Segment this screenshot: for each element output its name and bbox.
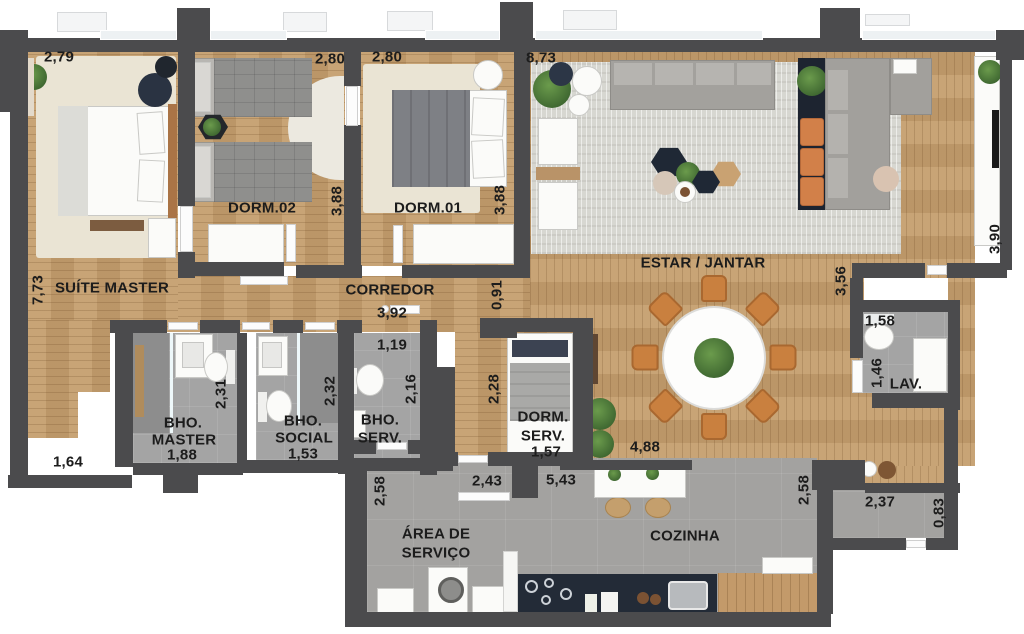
dim-bho-social-height: 2,32 [323,376,338,406]
plant [978,60,1002,84]
wall [862,300,948,312]
kitchen-sink [668,581,708,610]
door-lav [852,360,863,393]
wall-pier [480,318,517,338]
room-label-lav: LAV. [890,377,922,392]
dim-cozinha-width: 5,43 [546,473,576,488]
floor-suite-lower [23,320,110,392]
dim-passage-height: 0,83 [932,498,947,528]
wall-island-back [560,460,692,470]
armchair [538,118,578,165]
wall-stub [163,467,198,493]
room-label-cozinha: COZINHA [650,529,720,544]
closet-dorm02 [208,224,284,264]
dim-passage-width: 2,37 [865,495,895,510]
room-label-corredor: CORREDOR [345,283,434,298]
blanket [214,58,312,117]
door-open-leaf [240,276,288,285]
room-label-bho-serv-2: SERV. [358,431,402,446]
dim-corredor-length: 3,92 [377,306,407,321]
room-label-bho-master-1: BHO. [164,416,202,431]
wall [344,125,361,268]
washer-door [438,577,464,603]
window [425,30,500,40]
wall [178,46,195,206]
sofa-cushion [655,63,693,85]
dim-bho-social-width: 1,53 [288,447,318,462]
toilet [204,352,228,382]
ironing-board [503,551,518,612]
dim-dorm02-width: 2,80 [315,52,345,67]
wall [872,393,948,408]
dim-suite-width: 2,79 [44,50,74,65]
dim-suite-height: 7,73 [31,275,46,305]
exterior-unit [865,14,910,26]
sofa-cushion [696,63,734,85]
ottoman [138,73,172,107]
wall [200,320,240,333]
room-label-bho-social-1: BHO. [284,414,322,429]
dim-bho-master-width: 1,88 [167,448,197,463]
dim-estar-width: 8,73 [526,51,556,66]
wall [296,265,362,278]
room-label-dorm01: DORM.01 [394,201,462,216]
wall [115,320,133,467]
room-label-dorm02: DORM.02 [228,201,296,216]
room-label-estar-jantar: ESTAR / JANTAR [641,256,766,271]
headboard [168,104,177,218]
door [242,322,270,330]
dim-area-servico-height: 2,58 [373,476,388,506]
dim-dorm-serv-height: 2,28 [487,374,502,404]
floor-suite-lower2 [23,392,78,438]
pillow [193,146,211,198]
wall [402,265,514,278]
stool [605,497,631,518]
side-table-beige [873,166,899,192]
wall [344,46,361,86]
door-dorm02-side [346,86,358,126]
pillow [893,59,917,74]
dim-entry-hall: 1,64 [53,455,83,470]
sofa-cushion [737,63,771,85]
door-bho-social [305,322,335,330]
closet-dorm-serv [437,334,455,367]
toilet [356,364,384,396]
room-label-dorm-serv-1: DORM. [518,410,569,425]
room-label-area-servico-2: SERVIÇO [402,546,471,561]
door-bho-master [168,322,198,330]
door-dorm-serv [458,455,488,463]
bench [90,220,144,231]
sink [262,342,282,368]
decor-bowl [680,187,690,197]
counter-item [601,592,618,612]
dim-dorm02-height: 3,88 [330,186,345,216]
dim-estar-height-right: 3,90 [988,224,1003,254]
dim-cozinha-height: 2,58 [797,475,812,505]
exterior-notch [864,278,948,302]
wall [926,538,958,550]
dim-lav-width: 1,58 [865,314,895,329]
room-label-bho-serv-1: BHO. [361,413,399,428]
room-label-area-servico-1: ÁREA DE [402,527,470,542]
round-table [572,66,602,96]
wall [812,460,865,490]
wall [852,263,925,278]
wall-bottom [367,612,831,627]
counter-item [585,594,597,612]
exterior-unit [283,12,327,32]
sofa-cushion [828,114,848,154]
decor-plant-dry [878,461,896,479]
sink [182,342,204,368]
wall [817,490,833,614]
sofa-cushion [614,63,652,85]
dim-corredor-width: 0,91 [490,280,505,310]
window [535,30,763,40]
dim-bho-serv-width: 1,19 [377,338,407,353]
tv [992,110,999,168]
dim-lav-height: 1,46 [870,358,885,388]
wall [850,278,863,358]
wall-pier [512,458,538,498]
room-label-dorm-serv-2: SERV. [521,429,565,444]
sofa-cushion [828,158,848,198]
plant [797,66,827,96]
laundry-sink [377,588,414,614]
dining-chair [701,413,727,440]
wall-pillar [820,8,860,52]
pillow-navy [512,340,568,357]
bed-suite-fold [58,106,88,216]
wall [437,367,455,457]
burner [544,578,554,588]
dim-dorm01-width: 2,80 [372,50,402,65]
dining-chair [770,345,797,371]
dining-chair [701,275,727,302]
dim-bho-serv-height: 2,16 [404,374,419,404]
wall [345,458,367,627]
window [100,30,177,40]
exterior-unit [57,12,107,32]
shower-bench [135,345,144,417]
side-table-wood [536,167,580,180]
wall [948,300,960,410]
wall [237,333,247,463]
wall [273,320,303,333]
cushion-orange [800,177,824,206]
door-service-entry [906,540,926,548]
appliance [762,557,813,574]
dim-estar-height-inner: 3,56 [834,266,849,296]
side-stool [155,56,177,78]
dim-dorm01-height: 3,88 [493,185,508,215]
exterior-unit [563,10,617,30]
window [210,30,287,40]
room-label-bho-master-2: MASTER [152,433,217,448]
door-dorm02 [286,224,296,262]
dim-bho-master-height: 2,31 [214,379,229,409]
dresser [148,218,176,258]
kitchen-cabinet [718,573,817,613]
decor-bowl [637,592,649,604]
window [862,30,996,40]
wall [947,263,1007,278]
door-dorm01 [393,225,403,263]
dim-dorm-serv-width: 1,57 [531,445,561,460]
pillow [471,139,505,179]
wall [514,46,530,278]
wall [573,318,593,465]
closet-dorm01 [413,224,514,264]
cushion-orange [800,148,824,176]
stool [645,497,671,518]
wall-left [10,38,28,488]
door-terrace [927,265,947,275]
dim-kitchen-opening: 4,88 [630,440,660,455]
plant [203,118,221,136]
room-label-suite-master: SUÍTE MASTER [55,281,169,296]
bedside-table [473,60,503,90]
dim-area-servico-width: 2,43 [472,474,502,489]
duvet [392,90,470,187]
wall [8,475,132,488]
armchair [538,182,578,230]
plant-centerpiece [694,338,734,378]
pillow [137,159,165,202]
shower-glass [297,333,300,423]
decor-bowl [650,594,661,605]
pillow [137,111,166,155]
blanket [214,142,312,202]
round-table [568,94,590,116]
burner [525,580,538,593]
dining-chair [632,345,659,371]
floor-plan: 2,79 7,73 SUÍTE MASTER 2,80 3,88 DORM.02… [0,0,1024,634]
wall [408,440,422,454]
pillow [193,62,211,112]
door-suite [180,206,193,252]
pillow [471,97,505,137]
room-label-bho-social-2: SOCIAL [275,431,333,446]
burner [560,588,572,600]
wall [178,262,284,276]
sofa-cushion [828,70,848,110]
cushion-orange [800,118,824,146]
wall [367,458,453,471]
wall-pillar [500,2,533,52]
door-area-servico [458,492,510,501]
burner [541,595,551,605]
exterior-unit [387,11,433,31]
